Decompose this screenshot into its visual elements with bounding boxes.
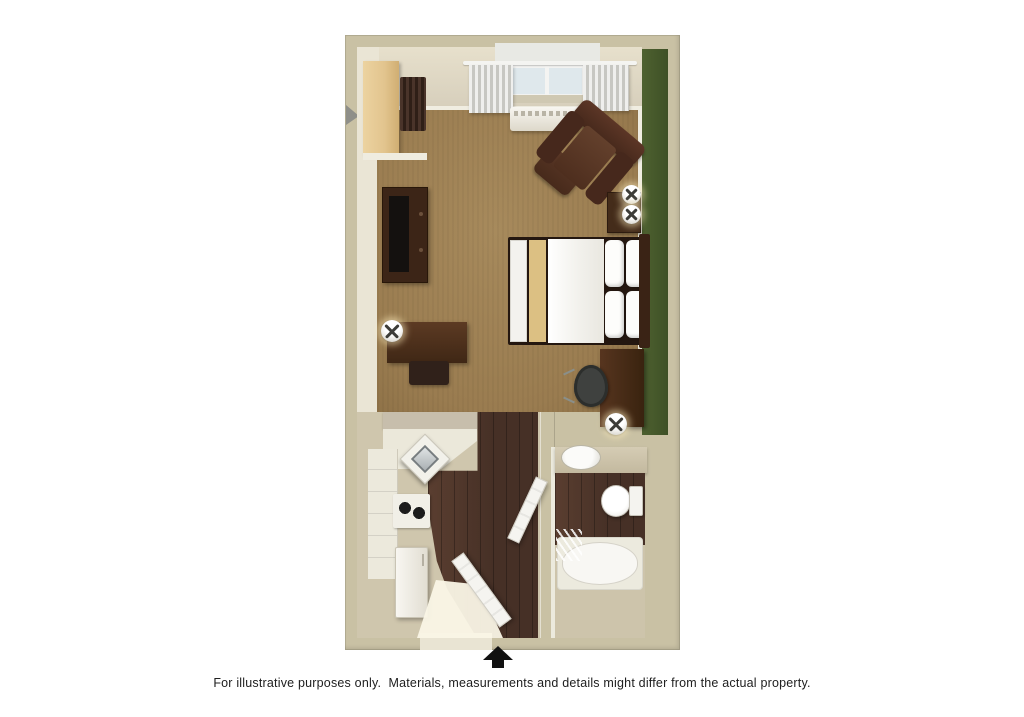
kitchen-bar-counter-top: [383, 412, 477, 429]
arrow-stem: [492, 659, 504, 668]
refrigerator: [395, 547, 428, 618]
headboard: [639, 234, 650, 348]
window-mullion: [545, 66, 549, 96]
bed: [508, 237, 650, 345]
tv-console: [382, 187, 428, 283]
bed-foot-linen: [510, 240, 527, 342]
desk-chair: [409, 361, 449, 385]
closet-shelves: [363, 61, 399, 155]
toilet-tank: [629, 486, 643, 516]
console-knob: [419, 248, 423, 252]
toilet-icon: [601, 485, 631, 517]
floor-plan-page: For illustrative purposes only. Material…: [0, 0, 1024, 717]
hanging-rod-icon: [400, 77, 426, 131]
arrow-head: [483, 646, 513, 660]
bed-runner: [529, 240, 546, 342]
shower-curtain-icon: [556, 529, 582, 561]
office-chair: [574, 365, 608, 407]
curtain-left: [469, 65, 513, 113]
bed-duvet: [548, 239, 604, 343]
two-burner-cooktop: [393, 494, 430, 528]
closet-ledge: [363, 153, 427, 160]
pillow: [605, 291, 624, 338]
disclaimer-text: For illustrative purposes only. Material…: [0, 676, 1024, 690]
vanity-sink-icon: [561, 445, 601, 470]
up-arrow-icon: [482, 646, 514, 672]
console-knob: [419, 212, 423, 216]
floor-plan: [345, 35, 680, 650]
pillow: [605, 240, 624, 287]
television-icon: [389, 196, 409, 272]
